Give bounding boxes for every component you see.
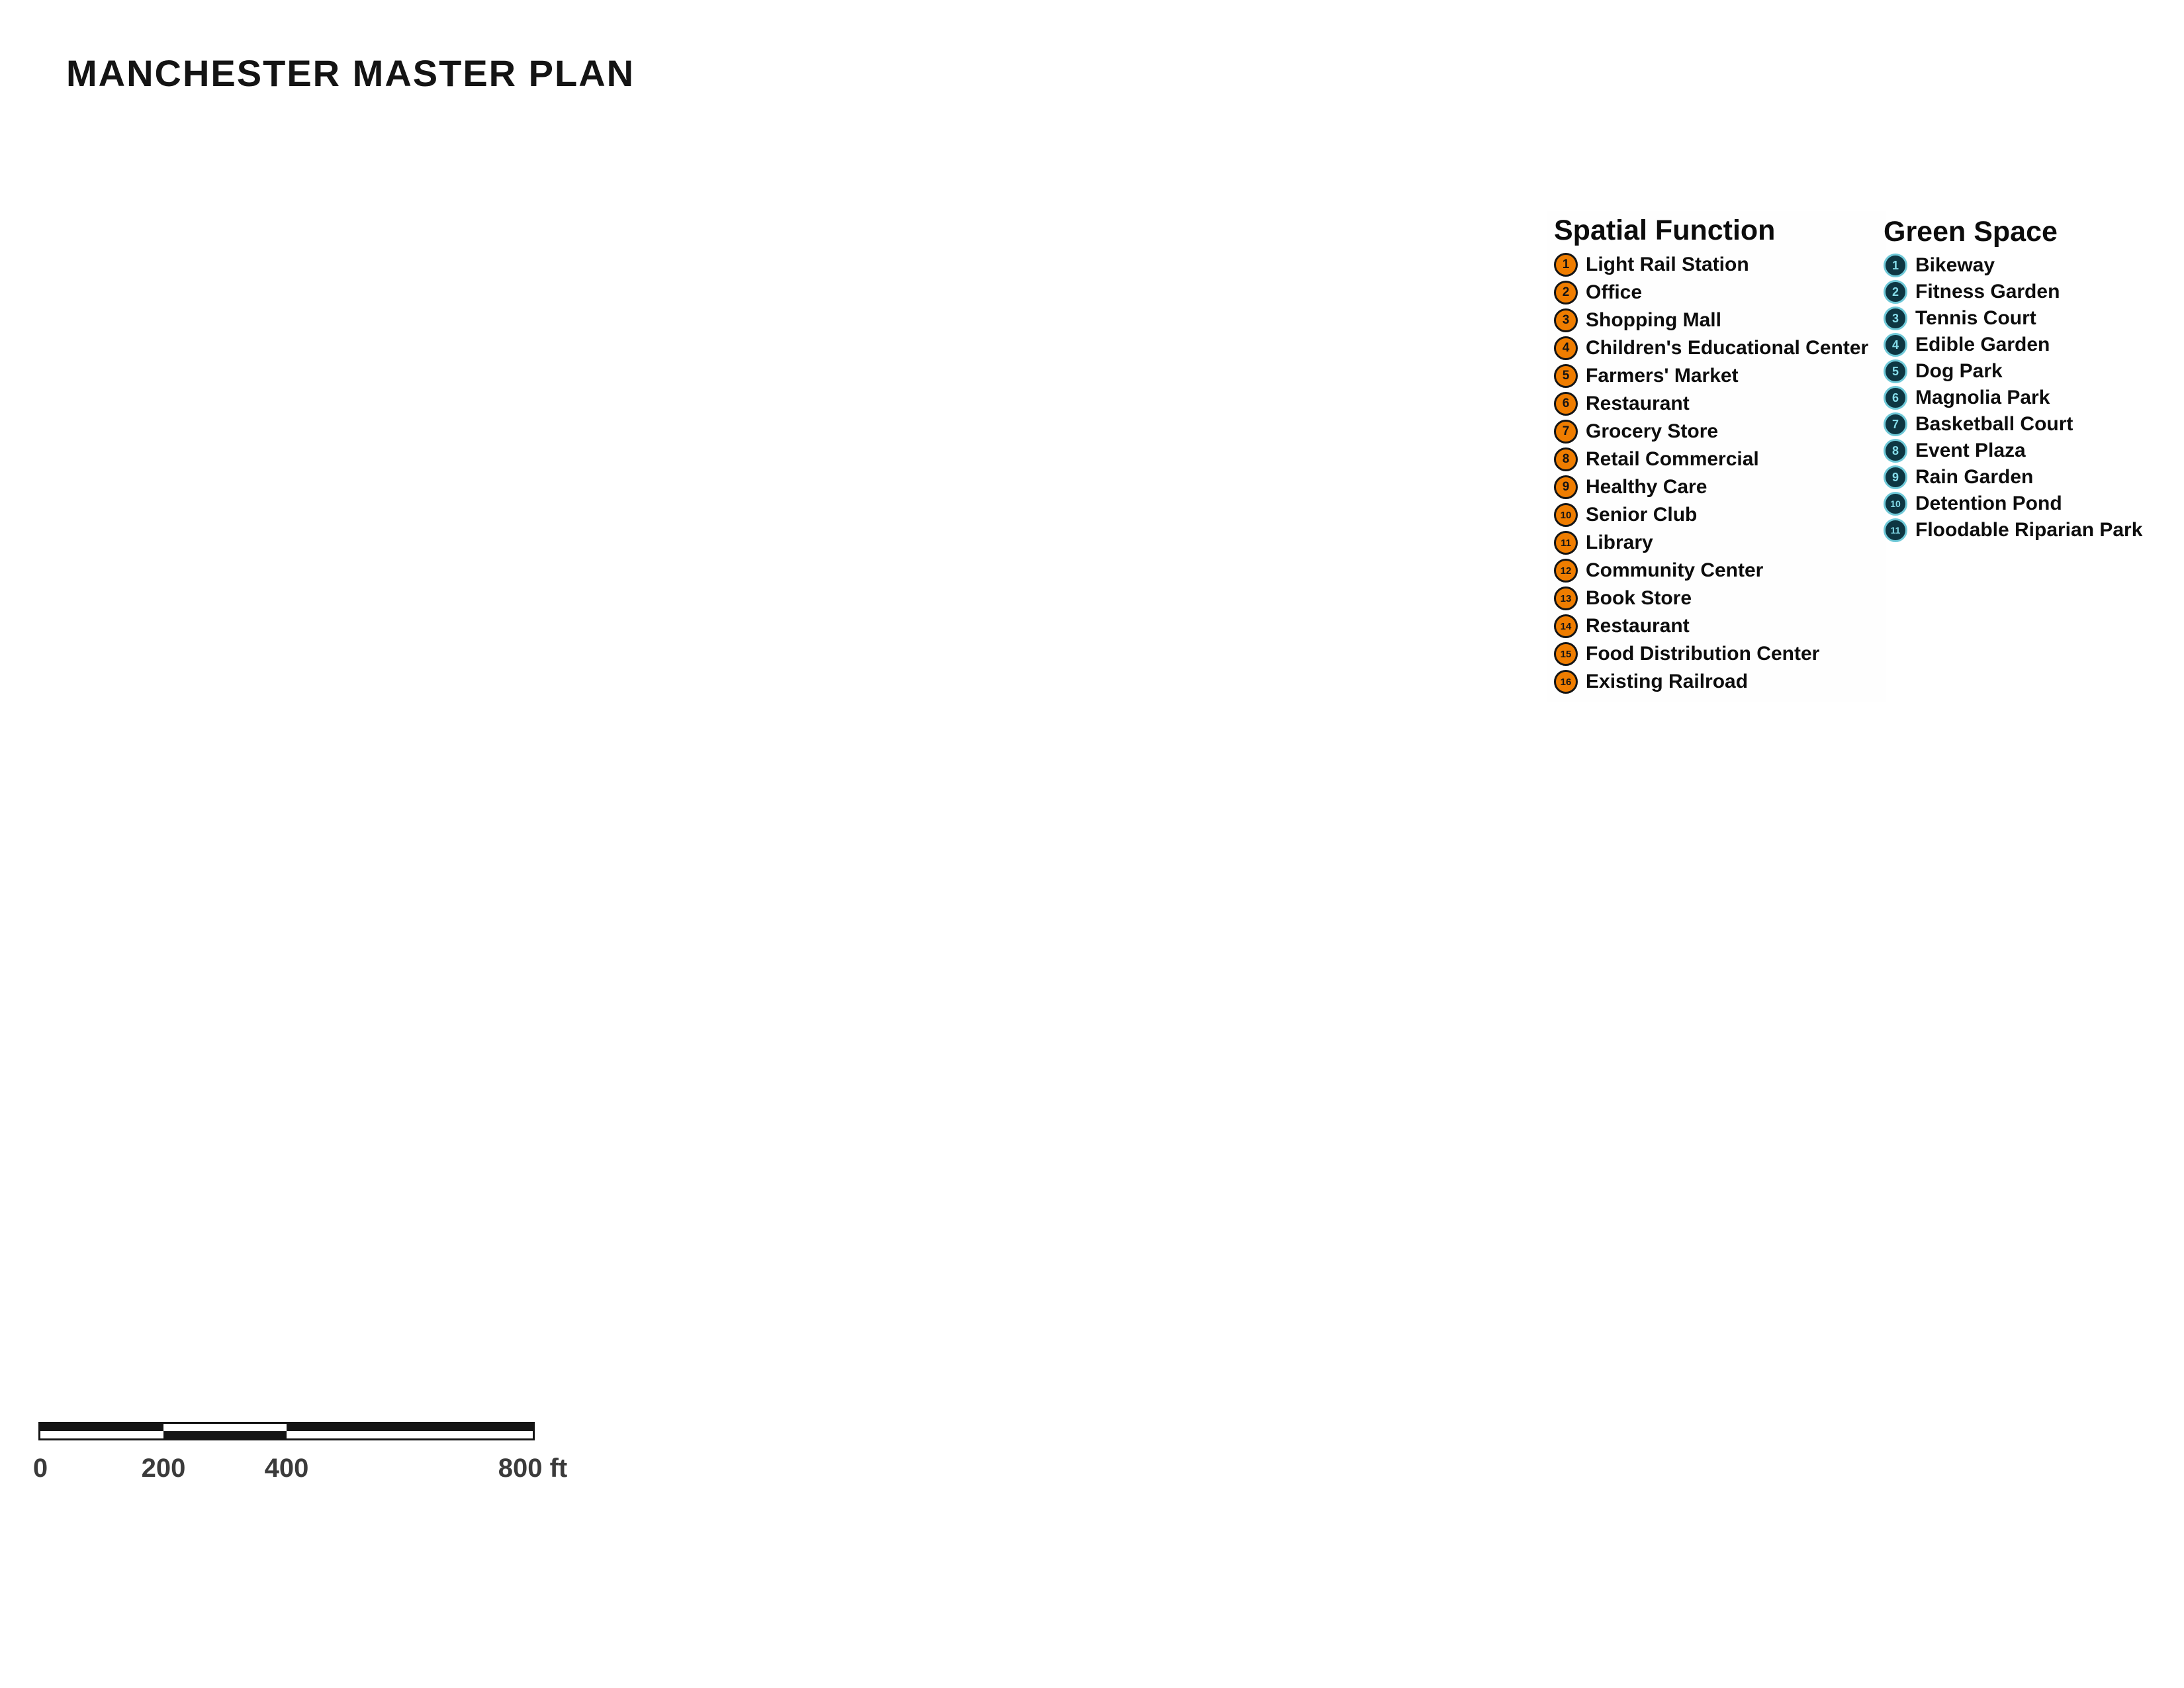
legend-chip-6: 6: [1554, 392, 1578, 416]
legend-item: 8Event Plaza: [1884, 438, 2161, 464]
legend-item: 3Tennis Court: [1884, 305, 2161, 332]
legend-chip-9: 9: [1554, 475, 1578, 499]
legend-chip-10: 10: [1884, 492, 1907, 516]
legend-chip-11: 11: [1884, 518, 1907, 542]
scale-label: 0: [33, 1454, 48, 1483]
legend-chip-8: 8: [1554, 447, 1578, 471]
legend-chip-1: 1: [1884, 254, 1907, 277]
legend-item-label: Book Store: [1586, 587, 1692, 610]
legend-spatial-heading: Spatial Function: [1554, 214, 1880, 247]
legend-chip-5: 5: [1884, 359, 1907, 383]
legend-chip-9: 9: [1884, 465, 1907, 489]
legend-item: 10Senior Club: [1554, 501, 1880, 529]
master-plan-page: MANCHESTER MASTER PLAN Spatial Function …: [0, 0, 2184, 1688]
legend-item-label: Edible Garden: [1915, 334, 2050, 356]
legend-item-label: Retail Commercial: [1586, 448, 1759, 471]
legend-item: 4Children's Educational Center: [1554, 334, 1880, 362]
legend-item-label: Dog Park: [1915, 360, 2003, 383]
legend-item: 10Detention Pond: [1884, 491, 2161, 517]
legend-chip-4: 4: [1554, 336, 1578, 360]
legend-chip-3: 3: [1554, 308, 1578, 332]
legend-chip-8: 8: [1884, 439, 1907, 463]
legend-item: 14Restaurant: [1554, 612, 1880, 640]
legend-item-label: Restaurant: [1586, 393, 1690, 415]
legend-chip-11: 11: [1554, 531, 1578, 555]
legend-chip-7: 7: [1884, 412, 1907, 436]
legend-chip-16: 16: [1554, 670, 1578, 694]
legend-item: 9Rain Garden: [1884, 464, 2161, 491]
legend-item-label: Healthy Care: [1586, 476, 1707, 498]
legend-item-label: Library: [1586, 532, 1653, 554]
legend-item: 1Bikeway: [1884, 252, 2161, 279]
legend-chip-14: 14: [1554, 614, 1578, 638]
legend-chip-15: 15: [1554, 642, 1578, 666]
legend-chip-2: 2: [1554, 281, 1578, 305]
legend-chip-6: 6: [1884, 386, 1907, 410]
legend-item-label: Community Center: [1586, 559, 1763, 582]
legend-chip-13: 13: [1554, 586, 1578, 610]
legend-chip-12: 12: [1554, 559, 1578, 583]
legend-item-label: Magnolia Park: [1915, 387, 2050, 409]
page-title: MANCHESTER MASTER PLAN: [66, 52, 635, 95]
legend-item-label: Floodable Riparian Park: [1915, 519, 2142, 541]
legend-item: 12Community Center: [1554, 557, 1880, 585]
legend-item-label: Restaurant: [1586, 615, 1690, 637]
legend-item: 5Farmers' Market: [1554, 362, 1880, 390]
legend-item-label: Basketball Court: [1915, 413, 2073, 436]
legend-item-label: Rain Garden: [1915, 466, 2033, 489]
legend-item: 6Magnolia Park: [1884, 385, 2161, 411]
legend-chip-4: 4: [1884, 333, 1907, 357]
legend-chip-3: 3: [1884, 306, 1907, 330]
legend-spatial-function: Spatial Function 1Light Rail Station2Off…: [1547, 211, 1886, 702]
legend-item-label: Grocery Store: [1586, 420, 1718, 443]
legend-item: 16Existing Railroad: [1554, 668, 1880, 696]
legend-chip-2: 2: [1884, 280, 1907, 304]
legend-item-label: Light Rail Station: [1586, 254, 1749, 276]
legend-item-label: Farmers' Market: [1586, 365, 1739, 387]
legend-item-label: Existing Railroad: [1586, 671, 1748, 693]
legend-item: 13Book Store: [1554, 585, 1880, 612]
scale-bar-graphic: [38, 1422, 535, 1440]
scale-label: 400: [265, 1454, 309, 1483]
legend-item: 3Shopping Mall: [1554, 306, 1880, 334]
legend-chip-5: 5: [1554, 364, 1578, 388]
legend-item: 8Retail Commercial: [1554, 445, 1880, 473]
legend-item-label: Food Distribution Center: [1586, 643, 1819, 665]
legend-item-label: Event Plaza: [1915, 440, 2026, 462]
legend-item-label: Senior Club: [1586, 504, 1697, 526]
legend-chip-7: 7: [1554, 420, 1578, 444]
legend-item: 7Basketball Court: [1884, 411, 2161, 438]
legend-item-label: Fitness Garden: [1915, 281, 2060, 303]
legend-item-label: Detention Pond: [1915, 492, 2062, 515]
legend-item: 2Fitness Garden: [1884, 279, 2161, 305]
legend-green-heading: Green Space: [1884, 216, 2161, 248]
legend-item: 15Food Distribution Center: [1554, 640, 1880, 668]
scale-bar: 0200400800 ft: [38, 1422, 541, 1495]
legend-item-label: Shopping Mall: [1586, 309, 1721, 332]
legend-item: 5Dog Park: [1884, 358, 2161, 385]
legend-chip-10: 10: [1554, 503, 1578, 527]
legend-item: 4Edible Garden: [1884, 332, 2161, 358]
legend-item: 6Restaurant: [1554, 390, 1880, 418]
legend-item-label: Bikeway: [1915, 254, 1995, 277]
scale-label: 200: [142, 1454, 186, 1483]
scale-label: 800 ft: [498, 1454, 568, 1483]
legend-item: 11Library: [1554, 529, 1880, 557]
legend-item: 1Light Rail Station: [1554, 251, 1880, 279]
legend-item: 9Healthy Care: [1554, 473, 1880, 501]
legend-chip-1: 1: [1554, 253, 1578, 277]
legend-item: 2Office: [1554, 279, 1880, 306]
legend-item-label: Children's Educational Center: [1586, 337, 1868, 359]
legend-item: 7Grocery Store: [1554, 418, 1880, 445]
legend-item-label: Office: [1586, 281, 1642, 304]
legend-item-label: Tennis Court: [1915, 307, 2036, 330]
legend-item: 11Floodable Riparian Park: [1884, 517, 2161, 543]
legend-green-space: Green Space 1Bikeway2Fitness Garden3Tenn…: [1884, 216, 2161, 543]
